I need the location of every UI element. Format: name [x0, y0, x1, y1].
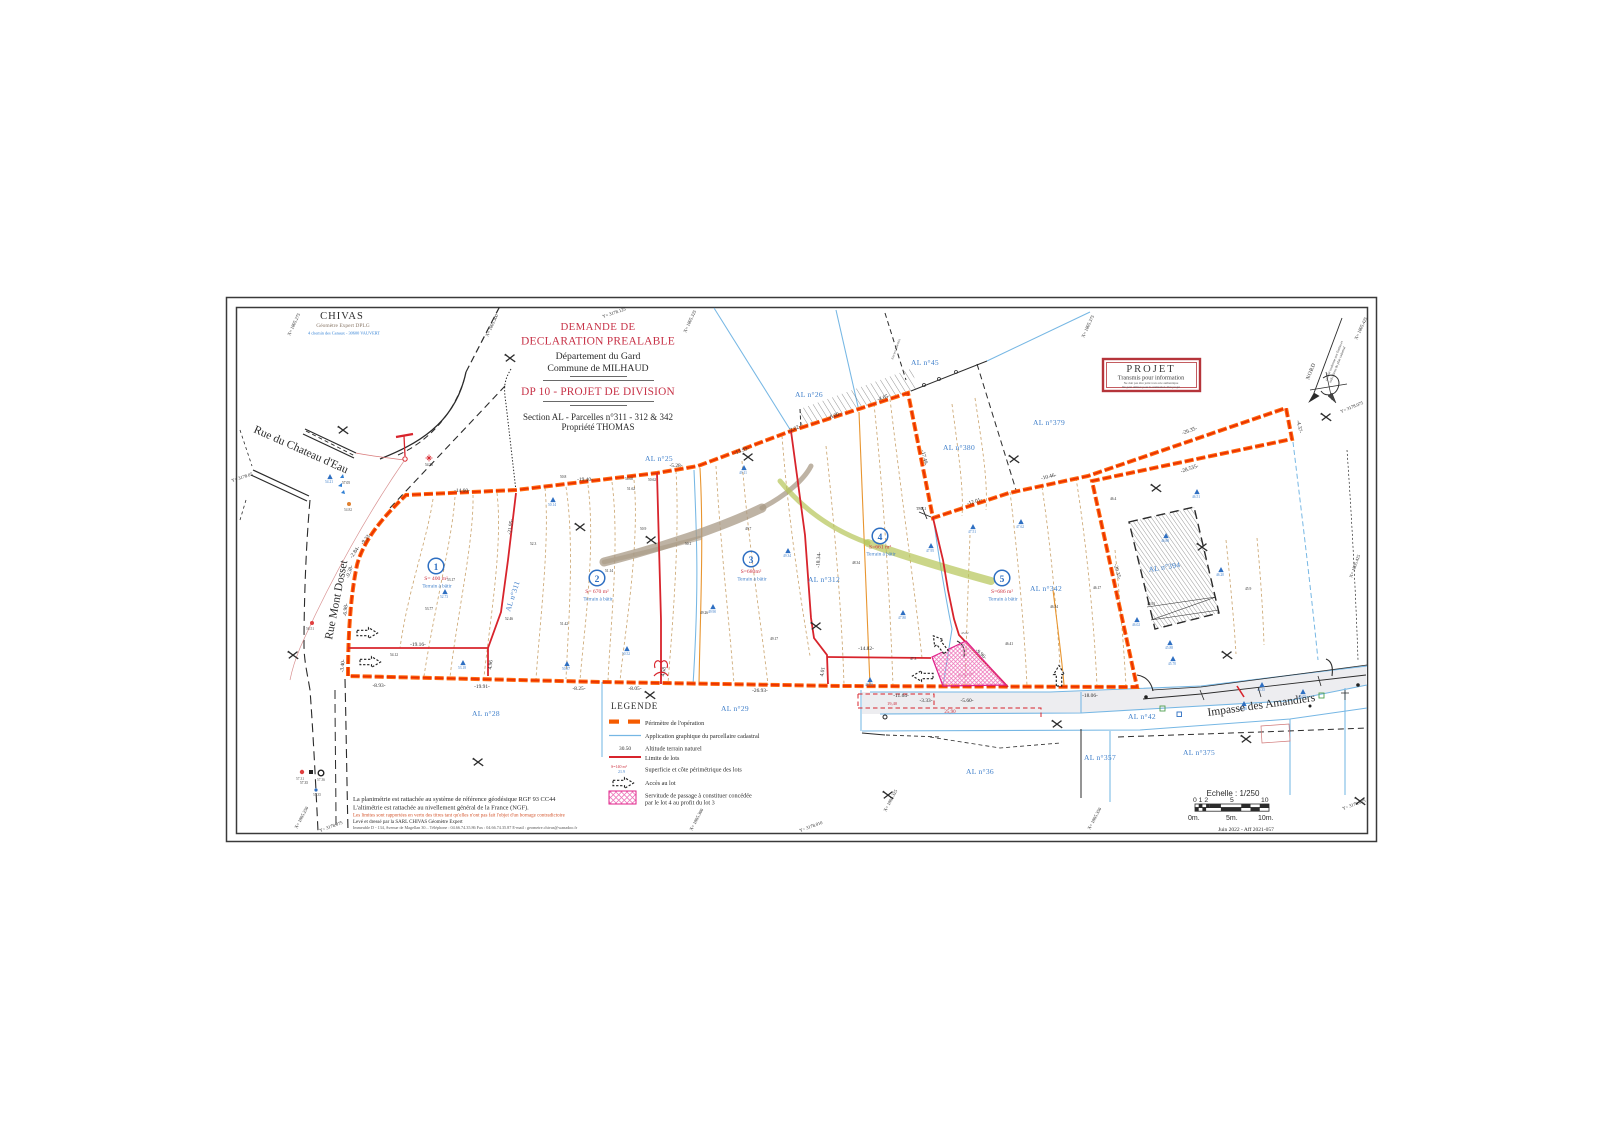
svg-text:50.8: 50.8 [560, 475, 566, 479]
svg-text:PROJET: PROJET [1126, 364, 1175, 375]
svg-text:S=661 m²: S=661 m² [869, 545, 891, 551]
svg-text:Département du Gard: Département du Gard [556, 351, 641, 362]
svg-text:Les limites sont rapportées en: Les limites sont rapportées en vertu des… [353, 814, 566, 819]
svg-text:53.18: 53.18 [458, 666, 466, 670]
svg-text:10m.: 10m. [1258, 815, 1274, 822]
svg-text:La planimétrie est rattachée a: La planimétrie est rattachée au système … [353, 796, 556, 803]
svg-text:49.11: 49.11 [739, 471, 747, 475]
svg-text:-5.28-: -5.28- [669, 463, 682, 469]
svg-text:49.26: 49.26 [700, 611, 708, 615]
svg-text:Ne peut utiliser pour la réali: Ne peut utiliser pour la réalisation d'u… [1122, 385, 1180, 389]
svg-text:DECLARATION PREALABLE: DECLARATION PREALABLE [521, 336, 675, 348]
svg-text:48.34: 48.34 [852, 561, 860, 565]
svg-text:0 1 2: 0 1 2 [1193, 797, 1208, 804]
svg-text:45.9: 45.9 [1245, 587, 1251, 591]
svg-text:AL n°29: AL n°29 [721, 704, 749, 713]
svg-text:AL n°25: AL n°25 [645, 454, 673, 463]
svg-text:-26.93-: -26.93- [752, 688, 768, 694]
svg-text:Altitude terrain naturel: Altitude terrain naturel [645, 746, 702, 753]
svg-text:5: 5 [1000, 575, 1005, 585]
svg-text:Limite de lots: Limite de lots [645, 755, 680, 762]
svg-text:47.3: 47.3 [910, 657, 916, 661]
svg-text:Commune de MILHAUD: Commune de MILHAUD [547, 363, 648, 374]
svg-text:4 chemin des Canaux - 30600 VA: 4 chemin des Canaux - 30600 VAUVERT [308, 331, 380, 336]
svg-text:54.82: 54.82 [344, 508, 352, 512]
svg-text:-5.60-: -5.60- [960, 698, 973, 704]
svg-text:-8.05-: -8.05- [628, 686, 641, 692]
svg-text:47.95: 47.95 [926, 549, 934, 553]
svg-text:L'altimétrie est rattachée au: L'altimétrie est rattachée au nivellemen… [353, 805, 529, 812]
svg-text:50.52: 50.52 [622, 652, 630, 656]
svg-text:45.93: 45.93 [1147, 602, 1155, 606]
svg-text:-8.25-: -8.25- [572, 686, 585, 692]
svg-text:57.36: 57.36 [317, 778, 325, 782]
svg-text:Superficie et côte périmétriqu: Superficie et côte périmétrique des lots [645, 767, 742, 774]
svg-text:2: 2 [595, 575, 600, 585]
svg-text:25,90: 25,90 [944, 710, 956, 715]
svg-text:46.88: 46.88 [1161, 539, 1169, 543]
svg-text:AL n°380: AL n°380 [943, 443, 975, 452]
svg-text:LEGENDE: LEGENDE [611, 701, 658, 711]
svg-text:S=680m²: S=680m² [741, 569, 762, 575]
svg-text:51.62: 51.62 [627, 487, 635, 491]
svg-text:5m.: 5m. [1226, 815, 1238, 822]
svg-text:Section AL - Parcelles n°311 -: Section AL - Parcelles n°311 - 312 & 342 [523, 412, 673, 422]
svg-text:49.7: 49.7 [745, 527, 751, 531]
svg-text:51.42: 51.42 [560, 622, 568, 626]
svg-text:Terrain à bâtir: Terrain à bâtir [988, 597, 1018, 603]
svg-text:AL n°379: AL n°379 [1033, 418, 1065, 427]
svg-text:49.17: 49.17 [770, 637, 778, 641]
svg-text:-18.06-: -18.06- [1082, 693, 1098, 699]
svg-text:-11.64-: -11.64- [893, 693, 909, 699]
svg-text:AL n°342: AL n°342 [1030, 584, 1062, 593]
svg-text:0m.: 0m. [1188, 815, 1200, 822]
svg-text:3: 3 [749, 556, 754, 566]
svg-text:45.88: 45.88 [1165, 646, 1173, 650]
svg-text:Périmètre de l'opération: Périmètre de l'opération [645, 720, 704, 727]
svg-text:1: 1 [434, 563, 439, 573]
svg-text:AL n°312: AL n°312 [808, 575, 840, 584]
svg-text:-19.40-: -19.40- [577, 477, 593, 483]
svg-text:54.12: 54.12 [390, 653, 398, 657]
svg-text:S=686 m²: S=686 m² [991, 589, 1013, 595]
svg-text:-14.60-: -14.60- [454, 488, 470, 494]
svg-text:47.80: 47.80 [898, 616, 906, 620]
svg-text:47.51: 47.51 [968, 530, 976, 534]
svg-text:Propriété THOMAS: Propriété THOMAS [561, 422, 634, 432]
svg-text:50.14: 50.14 [548, 503, 556, 507]
svg-text:53.77: 53.77 [425, 607, 433, 611]
svg-text:54.21: 54.21 [325, 480, 333, 484]
svg-text:30.50: 30.50 [619, 746, 631, 752]
svg-text:DP 10 - PROJET DE DIVISION: DP 10 - PROJET DE DIVISION [521, 386, 675, 398]
svg-text:5: 5 [1230, 797, 1234, 804]
svg-text:54.68: 54.68 [625, 477, 633, 481]
svg-text:49.34: 49.34 [783, 554, 791, 558]
svg-text:CHIVAS: CHIVAS [320, 311, 364, 322]
svg-text:Terrain à bâtir: Terrain à bâtir [866, 552, 896, 558]
svg-text:AL n°36: AL n°36 [966, 767, 994, 776]
svg-text:Terrain à bâtir: Terrain à bâtir [422, 584, 452, 590]
svg-text:46.51: 46.51 [1192, 495, 1200, 499]
svg-text:-19.16-: -19.16- [410, 642, 426, 648]
svg-text:50.1: 50.1 [685, 542, 691, 546]
svg-text:AL n°357: AL n°357 [1084, 753, 1116, 762]
svg-text:46.34: 46.34 [1050, 605, 1058, 609]
svg-text:Terrain à bâtir: Terrain à bâtir [583, 597, 613, 603]
svg-text:Géomètre Expert DPLG: Géomètre Expert DPLG [316, 323, 369, 329]
svg-text:57.31: 57.31 [296, 777, 304, 781]
svg-text:46.4: 46.4 [1110, 497, 1116, 501]
svg-text:21.9: 21.9 [618, 769, 625, 774]
svg-text:51.14: 51.14 [605, 569, 613, 573]
svg-text:46.17: 46.17 [1093, 586, 1101, 590]
svg-text:49.90: 49.90 [708, 610, 716, 614]
svg-text:54.56: 54.56 [425, 463, 433, 467]
svg-text:Servitude de passage à constit: Servitude de passage à constituer concéd… [645, 793, 752, 800]
svg-text:52.3: 52.3 [530, 542, 536, 546]
svg-text:45.70: 45.70 [1168, 662, 1176, 666]
svg-text:10: 10 [1261, 797, 1269, 804]
svg-text:46.41: 46.41 [1005, 642, 1013, 646]
svg-text:S= 670 m²: S= 670 m² [585, 589, 609, 595]
svg-text:52.73: 52.73 [440, 595, 448, 599]
svg-text:-14.82-: -14.82- [858, 646, 874, 652]
svg-text:57.35: 57.35 [313, 793, 321, 797]
svg-text:AL n°375: AL n°375 [1183, 748, 1215, 757]
svg-text:57.35: 57.35 [300, 781, 308, 785]
svg-text:Terrain à bâtir: Terrain à bâtir [737, 577, 767, 583]
svg-text:S= 400 m²: S= 400 m² [424, 576, 448, 582]
svg-text:Juin 2022 - Aff 2021-057: Juin 2022 - Aff 2021-057 [1218, 826, 1274, 833]
svg-text:Accès au lot: Accès au lot [645, 780, 676, 787]
svg-text:Application graphique du parce: Application graphique du parcellaire cad… [645, 733, 760, 740]
svg-text:43.02: 43.02 [961, 631, 969, 635]
svg-text:53.17: 53.17 [447, 578, 455, 582]
svg-text:AL n°26: AL n°26 [795, 390, 823, 399]
svg-text:-19.91-: -19.91- [474, 684, 490, 690]
svg-text:50.62: 50.62 [648, 478, 656, 482]
svg-text:-8.93-: -8.93- [372, 683, 385, 689]
svg-text:57.05: 57.05 [342, 481, 350, 485]
svg-text:AL n°42: AL n°42 [1128, 712, 1156, 721]
svg-text:46.20: 46.20 [1216, 573, 1224, 577]
svg-text:50.87: 50.87 [562, 667, 570, 671]
svg-text:4: 4 [878, 533, 883, 543]
svg-text:DEMANDE DE: DEMANDE DE [560, 321, 635, 333]
svg-text:52.46: 52.46 [505, 617, 513, 621]
svg-text:47.1: 47.1 [920, 507, 926, 511]
svg-text:50.9: 50.9 [640, 527, 646, 531]
svg-text:47.62: 47.62 [1016, 525, 1024, 529]
svg-text:56.51: 56.51 [306, 627, 314, 631]
svg-text:48.15: 48.15 [865, 683, 873, 687]
svg-text:AL n°28: AL n°28 [472, 709, 500, 718]
svg-text:AL n°45: AL n°45 [911, 358, 939, 367]
svg-text:-3.33-: -3.33- [919, 698, 932, 704]
svg-text:par le lot 4 au profit du lot: par le lot 4 au profit du lot 3 [645, 800, 715, 807]
svg-text:46.02: 46.02 [1132, 623, 1140, 627]
